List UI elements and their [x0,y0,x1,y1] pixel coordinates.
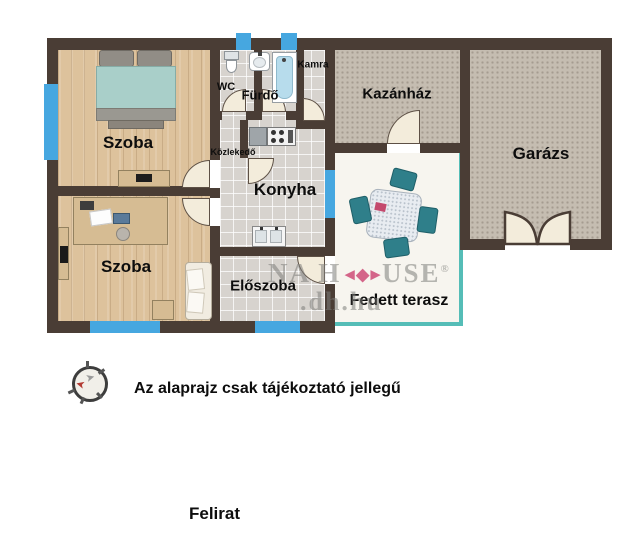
stove-controls [288,130,293,143]
window-bedroom1-left [44,84,58,160]
wall-garage-right [601,38,612,250]
bath-sink-basin [253,57,266,68]
floor-plan-page: Szoba Szoba WC Fürdő Kamra Közlekedő Kon… [0,0,640,554]
stove-burner [279,130,284,135]
kitchen-sink-basin [255,230,267,243]
wall-bath-bottom [246,111,262,120]
stove-burner [279,138,284,143]
caption-text: Felirat [189,504,240,524]
terrace-table [365,188,423,243]
wall-mid-vertical [210,188,220,198]
desk-monitor [80,201,94,210]
bed-pillow [137,50,172,67]
kitchen-counter [249,127,267,146]
wall-kitchen-hall [210,247,335,256]
terrace-chair [383,236,410,258]
brand-logo-icon: ◄◆► [341,265,382,284]
disclaimer-text: Az alaprajz csak tájékoztató jellegű [134,380,401,398]
wall-garage-bottom [460,239,505,250]
window-hall-bottom [255,321,300,333]
faucet [275,227,278,230]
terrace-border-bottom [335,322,463,326]
wall-right-mid [325,38,335,170]
wall-boiler-bottom [420,143,460,153]
faucet [260,227,263,230]
room-label-bathroom: Fürdő [242,88,279,103]
wall-pantry-bottom [304,120,325,129]
window-bath-top-1 [236,33,251,50]
compass-stub [86,361,89,368]
room-label-wc: WC [217,81,235,93]
toilet-tank [224,51,239,60]
window-bedroom2-bottom [90,321,160,333]
room-label-bedroom1: Szoba [103,133,153,153]
faucet [282,58,286,62]
room-label-boiler: Kazánház [362,86,431,103]
sofa-pillow [186,268,205,291]
toilet-bowl [226,60,237,73]
wall-mid-vertical [210,50,220,160]
room-label-garage: Garázs [513,144,570,164]
bed-bench [108,120,164,129]
shelf-tv [60,246,68,263]
wall-garage-left [460,50,470,250]
bed-pillow [99,50,134,67]
desk-chair [116,227,130,241]
compass-icon: ➤ ➤ [66,360,110,404]
garage-door [503,210,572,246]
room-label-kitchen: Konyha [254,180,316,200]
laptop [113,213,130,224]
wall-bath-bottom [220,111,222,120]
stove-burner [271,130,276,135]
kitchen-sink-basin [270,230,282,243]
window-bath-top-2 [281,33,297,50]
room-label-bedroom2: Szoba [101,257,151,277]
wall-garage-bottom [570,239,612,250]
cabinet [152,300,174,320]
desk-papers [89,209,113,227]
room-label-hallway: Közlekedő [210,147,255,157]
watermark-domain: .dh.hu [300,287,383,317]
tv [136,174,152,182]
sofa-pillow [186,291,205,313]
window-kitchen-terrace [325,170,335,218]
room-label-pantry: Kamra [297,60,328,71]
bed-duvet [96,66,176,110]
watermark-text-left: NA H [268,258,341,288]
watermark-brand: NA H◄◆►USE® [268,258,451,289]
registered-mark: ® [441,263,451,275]
stove-burner [271,138,276,143]
wall-boiler-bottom [335,143,387,153]
faucet [258,52,262,56]
watermark-text-right: USE [382,258,441,288]
terrace-chair [416,206,438,234]
